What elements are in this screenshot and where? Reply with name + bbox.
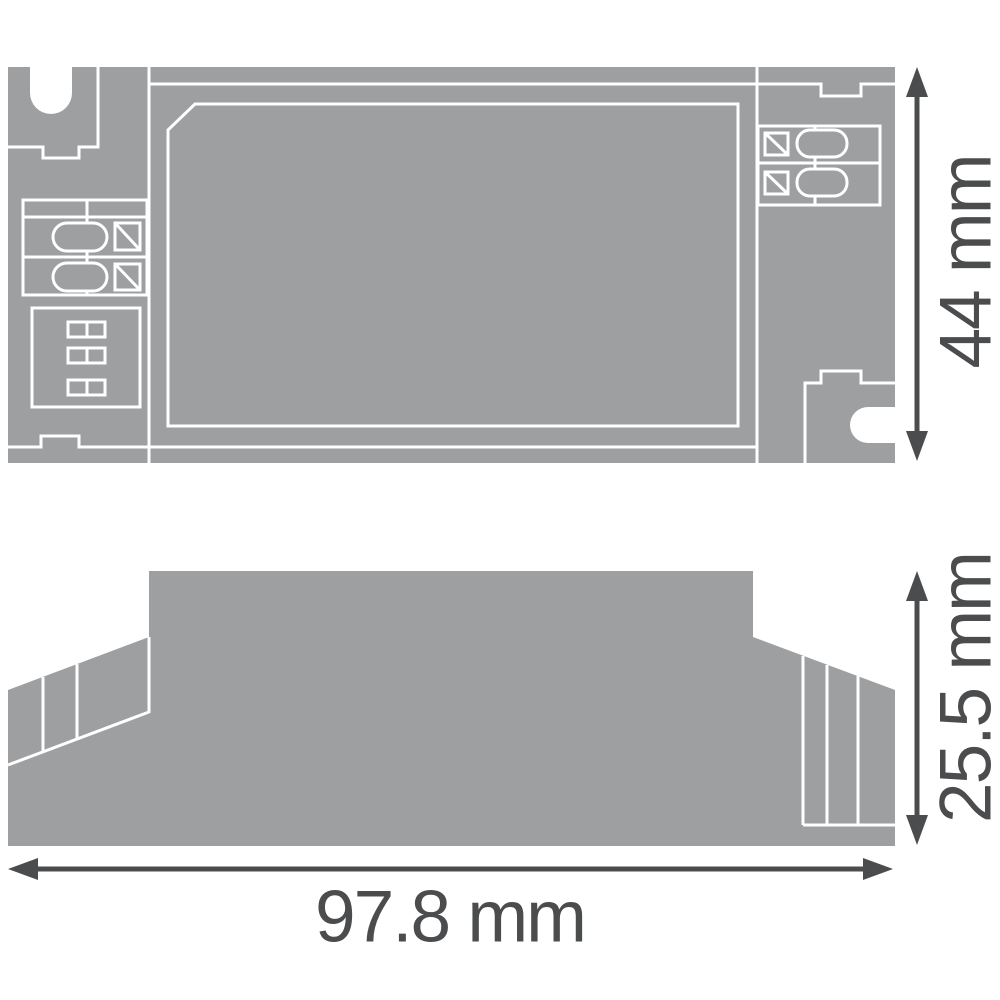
- arrow-up-head: [906, 67, 928, 97]
- side-view: [8, 571, 895, 846]
- arrow-down-head: [906, 431, 928, 461]
- depth-dimension-label: 25.5 mm: [930, 553, 1000, 823]
- drawing-svg: [0, 0, 1000, 1000]
- wire-release-clamp: [797, 169, 847, 196]
- wire-release-clamp: [53, 223, 107, 251]
- arrow-left-head: [8, 858, 38, 880]
- top-view: [8, 67, 895, 463]
- wire-release-clamp: [797, 130, 847, 157]
- side-view-body: [8, 571, 895, 846]
- arrow-right-head: [863, 858, 893, 880]
- dimension-drawing: 44 mm 25.5 mm 97.8 mm: [0, 0, 1000, 1000]
- height-dimension-label: 44 mm: [930, 155, 1000, 368]
- wire-release-clamp: [53, 263, 107, 291]
- width-dimension-label: 97.8 mm: [315, 881, 585, 954]
